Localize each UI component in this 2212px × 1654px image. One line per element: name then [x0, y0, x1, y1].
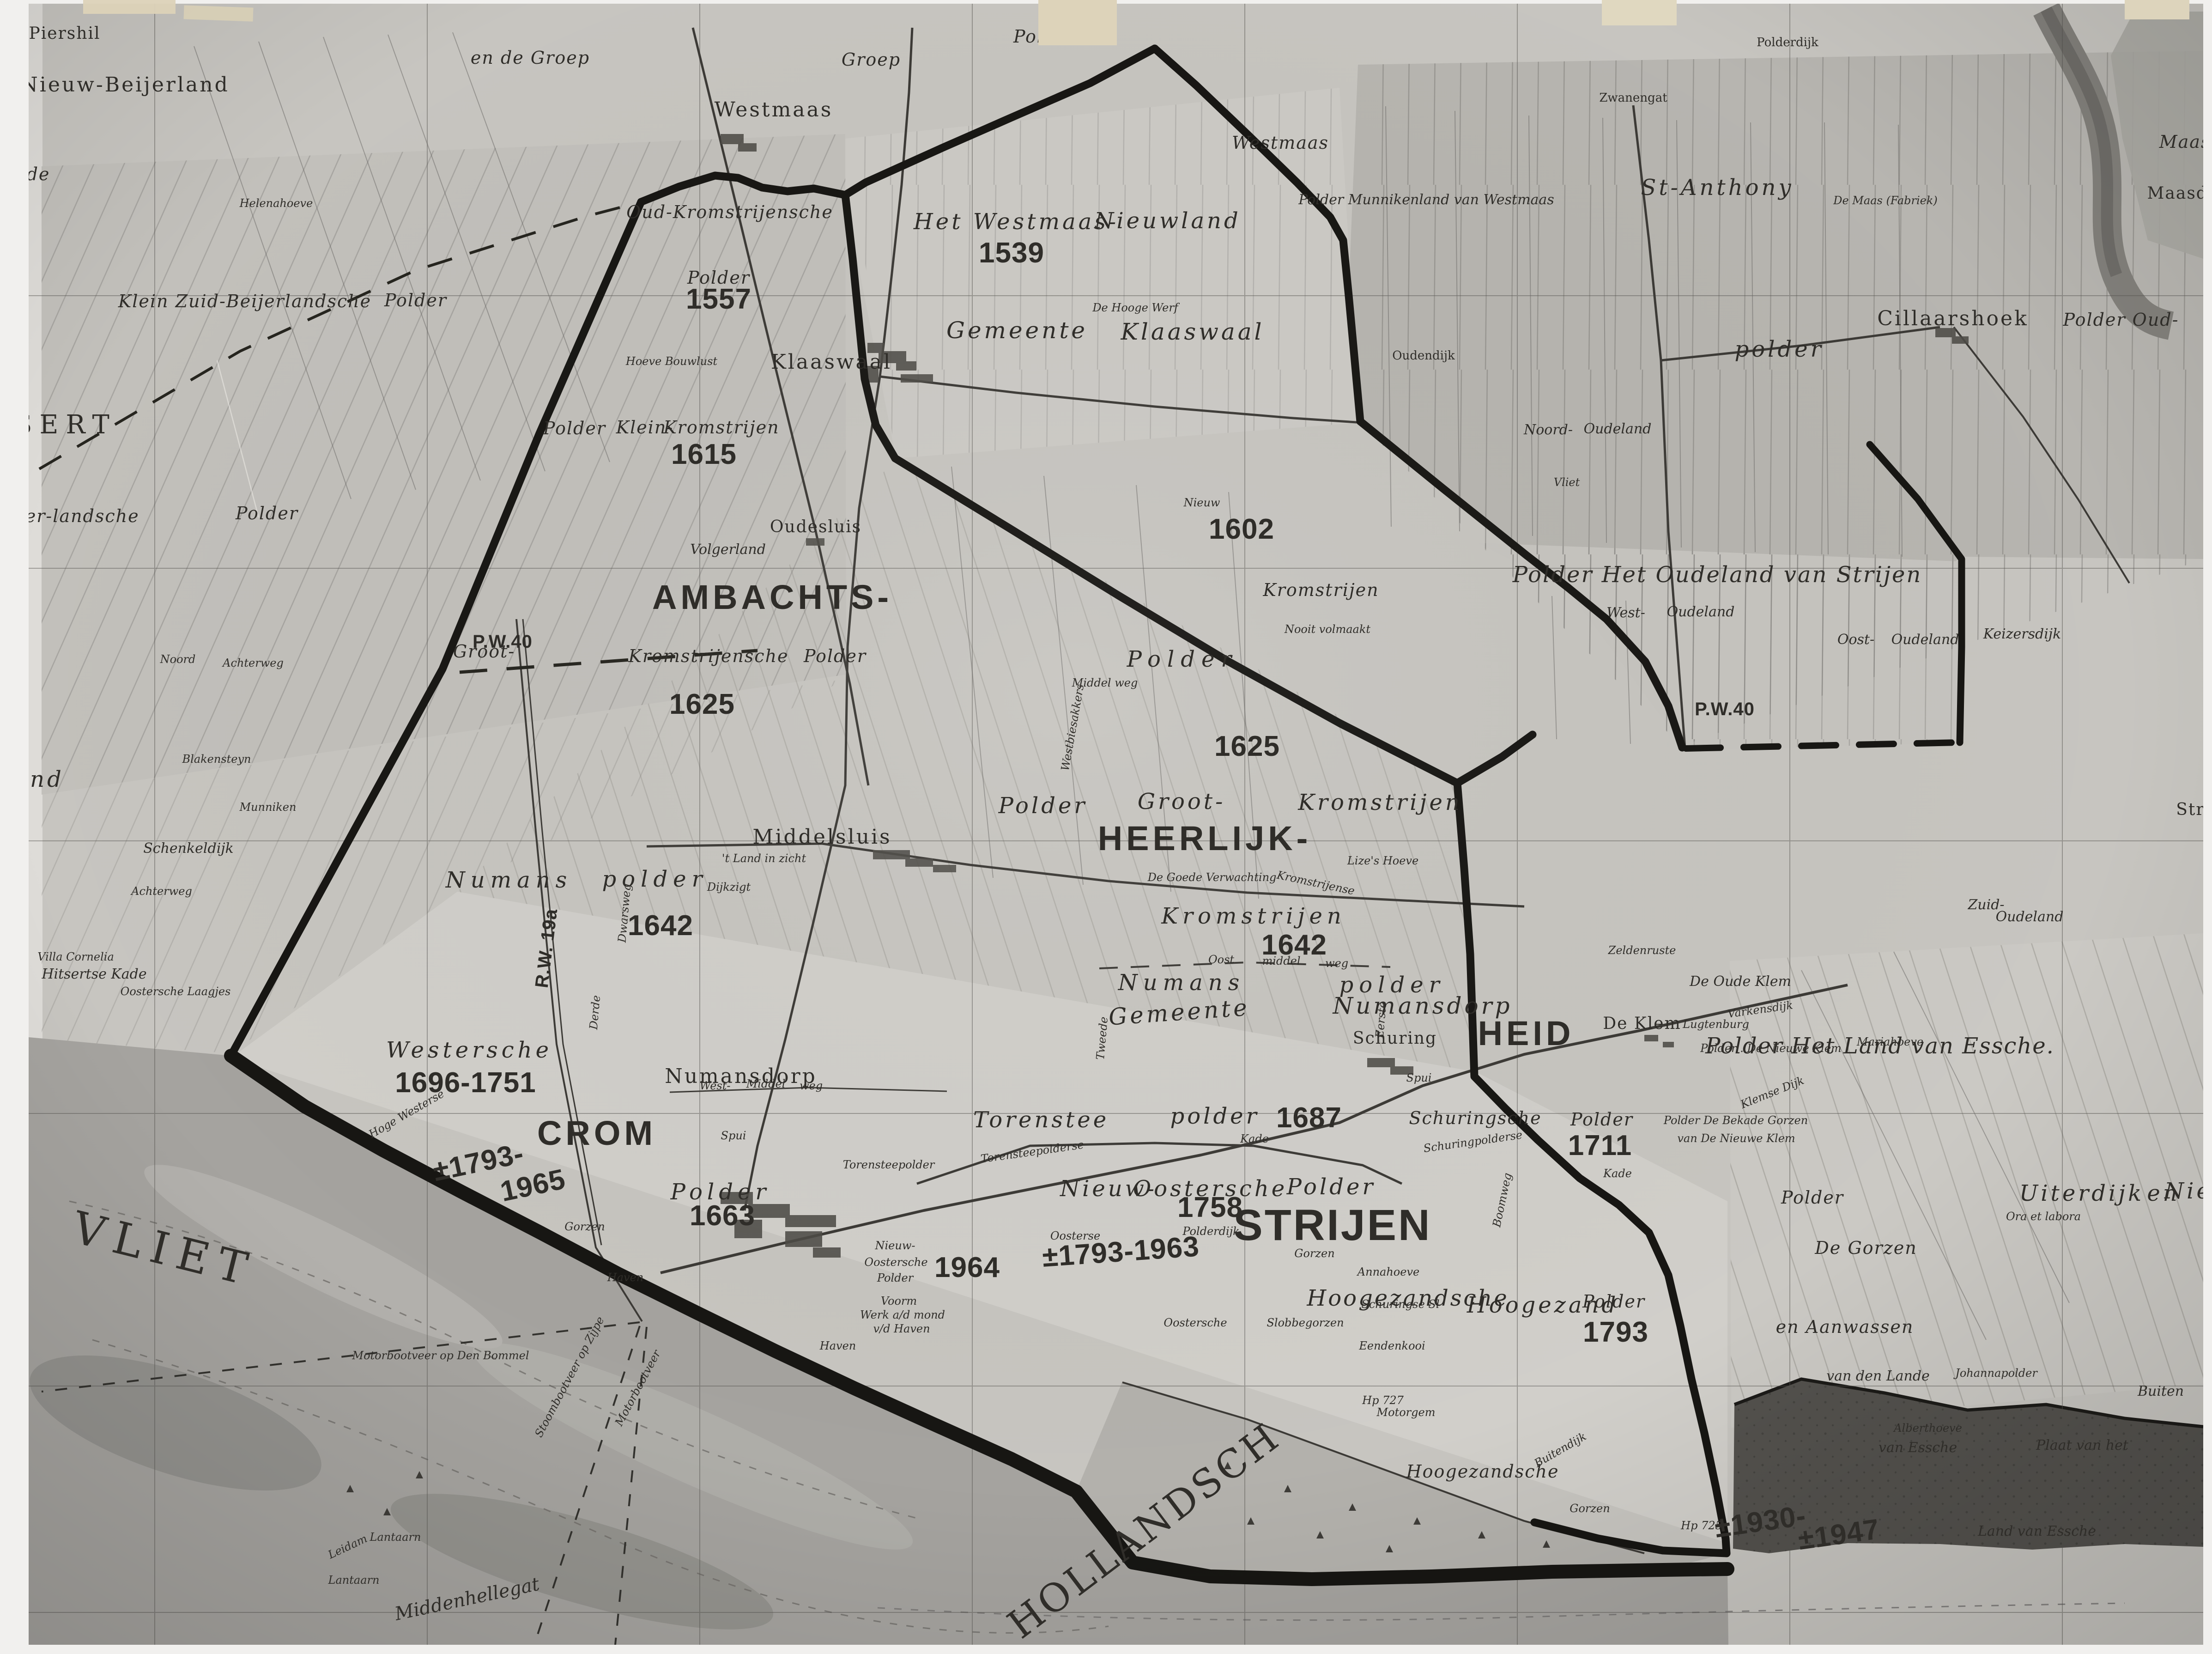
label-west: West-	[1606, 605, 1645, 621]
label-klaaswaal: Klaaswaal	[771, 350, 892, 374]
label-1539: 1539	[979, 237, 1044, 269]
label-hp-727: Hp 727	[1362, 1394, 1404, 1407]
label-annahoeve: Annahoeve	[1357, 1265, 1419, 1278]
label-oudeland: Oudeland	[1667, 604, 1735, 620]
label-westmaas: Westmaas	[715, 98, 833, 122]
label-polder: Polder	[803, 646, 867, 666]
label-oostersche: Oostersche	[864, 1256, 927, 1269]
label-lize-s-hoeve: Lize's Hoeve	[1347, 854, 1418, 867]
label-heerlijk: HEERLIJK-	[1098, 819, 1312, 857]
label-blakensteyn: Blakensteyn	[182, 753, 251, 766]
label-1557: 1557	[686, 283, 751, 315]
label-de-goede-verwachting: De Goede Verwachting	[1147, 871, 1277, 884]
label-middelsluis: Middelsluis	[752, 825, 891, 849]
label-de-hooge-werf: De Hooge Werf	[1092, 301, 1180, 314]
tape-strip	[1038, 0, 1117, 45]
label-vliet: Vliet	[1554, 476, 1580, 489]
label-sert: SERT	[14, 410, 117, 440]
label-strijen: STRIJEN	[1233, 1201, 1431, 1250]
label-polder: polder	[1170, 1103, 1259, 1129]
label-numans: Numans	[1118, 970, 1245, 996]
label-groot: Groot-	[1138, 789, 1226, 815]
label-torensteepolder: Torensteepolder	[843, 1158, 935, 1171]
label-numansdorp: Numansdorp	[665, 1064, 817, 1088]
label-de-maas-fabriek: De Maas (Fabriek)	[1833, 194, 1938, 207]
label-lugtenburg: Lugtenburg	[1682, 1018, 1749, 1031]
label-zwanengat: Zwanengat	[1599, 91, 1667, 105]
label-klaaswaal: Klaaswaal	[1120, 318, 1264, 345]
label-polder-oud: Polder Oud-	[2063, 310, 2179, 330]
label-st-anthony: St-Anthony	[1641, 175, 1794, 201]
label-schuring: Schuring	[1353, 1029, 1437, 1048]
label-1602: 1602	[1209, 513, 1274, 545]
label-lantaarn: Lantaarn	[370, 1531, 421, 1544]
label-1615: 1615	[671, 438, 737, 470]
label-het-westmaas: Het Westmaas-	[913, 209, 1119, 235]
label-nieuwland: Nieuwland	[1094, 208, 1241, 234]
label-t-land-in-zicht: 't Land in zicht	[722, 852, 806, 865]
label-de-gorzen: De Gorzen	[1814, 1238, 1917, 1258]
label-1964: 1964	[934, 1252, 1000, 1283]
label-weg: weg	[1325, 957, 1348, 970]
label-numans: Numans	[445, 867, 573, 893]
label-polder: Polder	[998, 793, 1088, 819]
tape-strip	[184, 5, 254, 21]
label-polder-munnikenland-van-westmaas: Polder Munnikenland van Westmaas	[1298, 192, 1554, 208]
label-gorzen: Gorzen	[1570, 1502, 1610, 1515]
label-haven: Haven	[607, 1271, 643, 1284]
label-polder: Polder	[1286, 1174, 1376, 1200]
label-haven: Haven	[819, 1339, 856, 1352]
label-ambachts: AMBACHTS-	[652, 578, 892, 616]
label-hp-725: Hp 725	[1680, 1519, 1722, 1532]
label-polder: polder	[602, 866, 708, 892]
label-kromstrijen: Kromstrijen	[1297, 790, 1462, 815]
label-eendenkooi: Eendenkooi	[1358, 1339, 1425, 1352]
label-westersche: Westersche	[386, 1037, 552, 1063]
label-oudeland: Oudeland	[1996, 909, 2064, 925]
label-polderdijk: Polderdijk	[1757, 36, 1818, 49]
label-gorzen: Gorzen	[564, 1220, 605, 1233]
label-polder: Polder	[384, 290, 448, 310]
label-lantaarn: Lantaarn	[328, 1574, 380, 1587]
label-zeldenruste: Zeldenruste	[1608, 944, 1676, 957]
label-achterweg: Achterweg	[130, 885, 192, 898]
label-motorgem: Motorgem	[1376, 1406, 1436, 1419]
label-piershil: Piershil	[29, 24, 101, 43]
label-groep: Groep	[842, 49, 901, 70]
label-1711: 1711	[1568, 1130, 1632, 1161]
label-cillaarshoek: Cillaarshoek	[1877, 307, 2029, 330]
label-oudesluis: Oudesluis	[770, 517, 861, 536]
label-kromstrijen: Kromstrijen	[1262, 580, 1379, 600]
label-polder: Polder	[1582, 1291, 1646, 1312]
label-noord: Noord	[160, 653, 196, 666]
label-kromstrijen: Kromstrijen	[1161, 903, 1346, 929]
label-westmaas: Westmaas	[1232, 133, 1329, 153]
tape-strip	[1602, 0, 1677, 25]
label-1625: 1625	[1214, 730, 1280, 762]
label-polder-het-land-van-essche: Polder Het Land van Essche.	[1705, 1033, 2054, 1059]
label-van-de-nieuwe-klem: van De Nieuwe Klem	[1677, 1132, 1795, 1145]
label-alberthoeve: Alberthoeve	[1893, 1422, 1962, 1435]
label-p-w-40: P.W.40	[1695, 699, 1755, 719]
label-kade: Kade	[1603, 1167, 1632, 1180]
label-1696-1751: 1696-1751	[395, 1067, 536, 1099]
label-keizersdijk: Keizersdijk	[1983, 626, 2061, 642]
label-munniken: Munniken	[239, 801, 297, 814]
label-nieuw: Nieuw-	[875, 1239, 915, 1252]
label-kromstrijen: Kromstrijen	[663, 417, 779, 438]
label-1793: 1793	[1583, 1316, 1648, 1348]
label-middel: middel	[1262, 955, 1300, 967]
label-schenkeldijk: Schenkeldijk	[143, 840, 234, 857]
label-helenahoeve: Helenahoeve	[239, 197, 313, 210]
label-villa-cornelia: Villa Cornelia	[37, 950, 114, 963]
label-oudeland: Oudeland	[1891, 632, 1959, 648]
label-klein-zuid-beijerlandsche: Klein Zuid-Beijerlandsche	[118, 291, 371, 311]
map-screenshot: PiershilNieuw-BeijerlandzijdeHelenahoeve…	[0, 0, 2212, 1654]
label-gemeente: Gemeente	[946, 317, 1088, 344]
tape-strip	[2125, 0, 2189, 19]
label-slobbegorzen: Slobbegorzen	[1267, 1316, 1344, 1329]
label-oost: Oost	[1208, 953, 1234, 966]
label-noord: Noord-	[1523, 422, 1573, 438]
label-v-d-haven: v/d Haven	[873, 1322, 930, 1335]
label-werk-a-d-mond: Werk a/d mond	[860, 1308, 945, 1321]
label-nooit-volmaakt: Nooit volmaakt	[1284, 623, 1370, 636]
label-heid: HEID	[1478, 1014, 1575, 1052]
label-polder-de-bekade-gorzen: Polder De Bekade Gorzen	[1663, 1114, 1808, 1127]
label-spui: Spui	[1406, 1071, 1432, 1084]
label-motorbootveer-op-den-bommel: Motorbootveer op Den Bommel	[351, 1349, 529, 1362]
label-groot: Groot-	[453, 641, 515, 662]
label-oud-kromstrijensche: Oud-Kromstrijensche	[626, 202, 833, 222]
label-polder: Polder	[543, 418, 606, 438]
label-nieuw-beijerland: Nieuw-Beijerland	[20, 73, 229, 97]
label-schuringsche: Schuringsche	[1409, 1108, 1541, 1128]
label-oudendijk: Oudendijk	[1392, 349, 1455, 363]
label-achterweg: Achterweg	[222, 657, 284, 669]
label-kromstrijensche: Kromstrijensche	[628, 646, 788, 666]
label-polder: Polder	[235, 503, 299, 523]
label-1642: 1642	[628, 910, 693, 942]
label-de-klem: De Klem	[1603, 1014, 1681, 1033]
label-buiten: Buiten	[2137, 1383, 2184, 1399]
tape-strip	[83, 0, 176, 14]
label-oostersche: Oostersche	[1164, 1316, 1227, 1329]
label-oost: Oost-	[1837, 632, 1874, 648]
label-uiterdijk: Uiterdijk	[2019, 1180, 2145, 1206]
label-torenstee: Torenstee	[973, 1107, 1109, 1133]
label-spui: Spui	[721, 1129, 746, 1142]
label-polder: Polder	[1781, 1187, 1844, 1208]
label-dijkzigt: Dijkzigt	[707, 881, 751, 894]
label-oudeland: Oudeland	[1584, 421, 1652, 437]
label-de-oude-klem: De Oude Klem	[1689, 973, 1791, 990]
label-nieuw: Nieuw	[1183, 496, 1220, 509]
label-hoeve-bouwlust: Hoeve Bouwlust	[625, 355, 718, 368]
label-polder: polder	[1734, 336, 1824, 362]
label-johannapolder: Johannapolder	[1953, 1367, 2038, 1380]
label-1625: 1625	[669, 688, 735, 720]
label-1687: 1687	[1276, 1102, 1342, 1134]
label-1663: 1663	[690, 1200, 755, 1232]
label-land-van-essche: Land van Essche	[1977, 1523, 2096, 1539]
label-polder: Polder	[1570, 1109, 1634, 1130]
label-polder: Polder	[877, 1271, 914, 1284]
label-crom: CROM	[537, 1114, 656, 1152]
label-volgerland: Volgerland	[690, 541, 766, 558]
label-hitsertse-kade: Hitsertse Kade	[41, 966, 146, 982]
label-van-den-lande: van den Lande	[1826, 1368, 1930, 1384]
label-plaat-van-het: Plaat van het	[2036, 1437, 2129, 1453]
label-voorm: Voorm	[881, 1295, 917, 1307]
label-oostersche-laagjes: Oostersche Laagjes	[121, 985, 231, 998]
label-van-essche: van Essche	[1879, 1440, 1957, 1456]
label-polder: Polder	[1127, 646, 1238, 672]
label-ora-et-labora: Ora et labora	[2006, 1210, 2081, 1223]
label-kade: Kade	[1240, 1132, 1269, 1145]
label-maasdam: Maasdam	[2147, 184, 2212, 203]
label-polder-het-oudeland-van-strijen: Polder Het Oudeland van Strijen	[1512, 562, 1922, 588]
label-en-de-groep: en de Groep	[471, 48, 590, 68]
label-en-aanwassen: en Aanwassen	[1776, 1317, 1914, 1337]
